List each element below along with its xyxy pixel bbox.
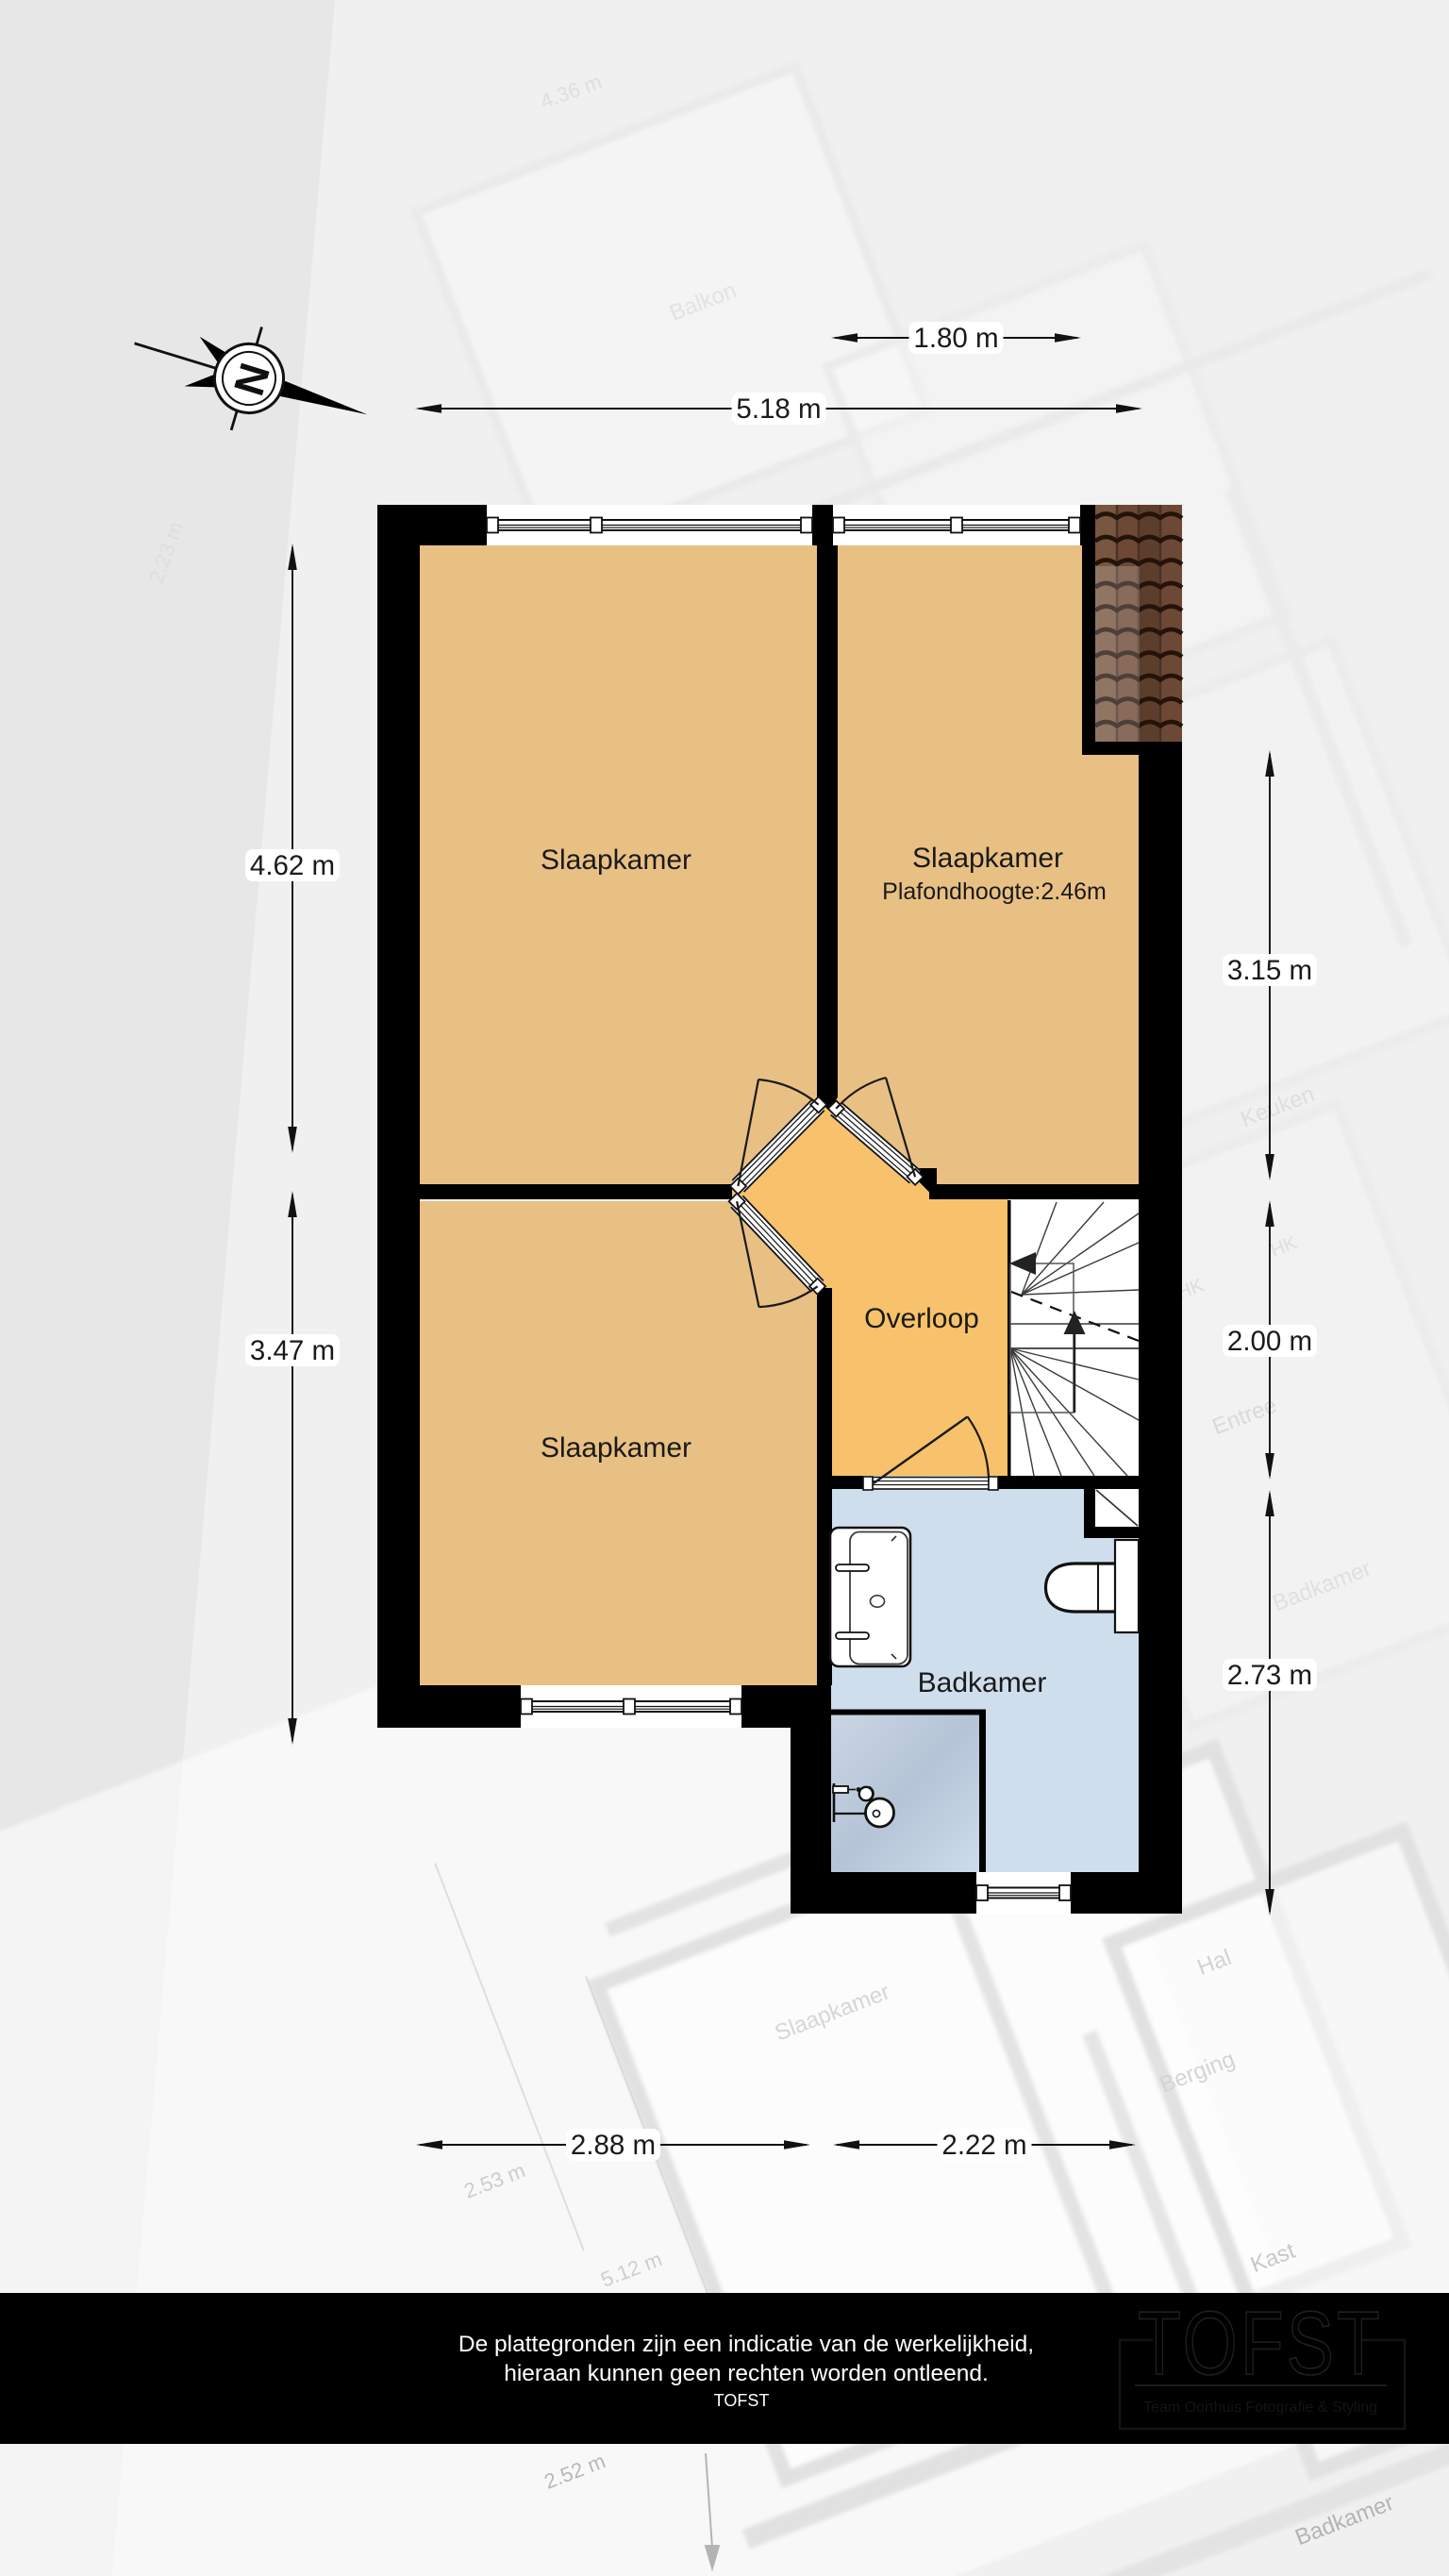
svg-text:Overloop: Overloop [864, 1303, 979, 1334]
svg-text:2.73 m: 2.73 m [1227, 1660, 1312, 1691]
svg-text:Slaapkamer: Slaapkamer [541, 845, 691, 876]
svg-text:Slaapkamer: Slaapkamer [541, 1432, 691, 1464]
svg-text:2.22 m: 2.22 m [941, 2130, 1026, 2161]
svg-text:Slaapkamer: Slaapkamer [912, 843, 1063, 874]
svg-text:hieraan kunnen geen rechten wo: hieraan kunnen geen rechten worden ontle… [504, 2361, 989, 2386]
svg-text:2.88 m: 2.88 m [571, 2130, 656, 2161]
svg-text:3.15 m: 3.15 m [1227, 955, 1312, 986]
svg-text:Team Oorthuis Fotografie & Sty: Team Oorthuis Fotografie & Styling [1143, 2400, 1377, 2416]
svg-text:1.80 m: 1.80 m [913, 323, 998, 354]
svg-text:3.47 m: 3.47 m [250, 1335, 335, 1366]
svg-text:De plattegronden zijn een indi: De plattegronden zijn een indicatie van … [458, 2332, 1034, 2357]
svg-text:TOFST: TOFST [714, 2391, 770, 2410]
svg-text:Plafondhoogte:2.46m: Plafondhoogte:2.46m [882, 878, 1107, 905]
svg-text:TOFST: TOFST [1138, 2293, 1383, 2394]
svg-text:5.18 m: 5.18 m [736, 393, 821, 425]
svg-text:2.00 m: 2.00 m [1227, 1326, 1312, 1357]
svg-text:Badkamer: Badkamer [918, 1667, 1047, 1698]
svg-text:4.62 m: 4.62 m [250, 850, 335, 881]
